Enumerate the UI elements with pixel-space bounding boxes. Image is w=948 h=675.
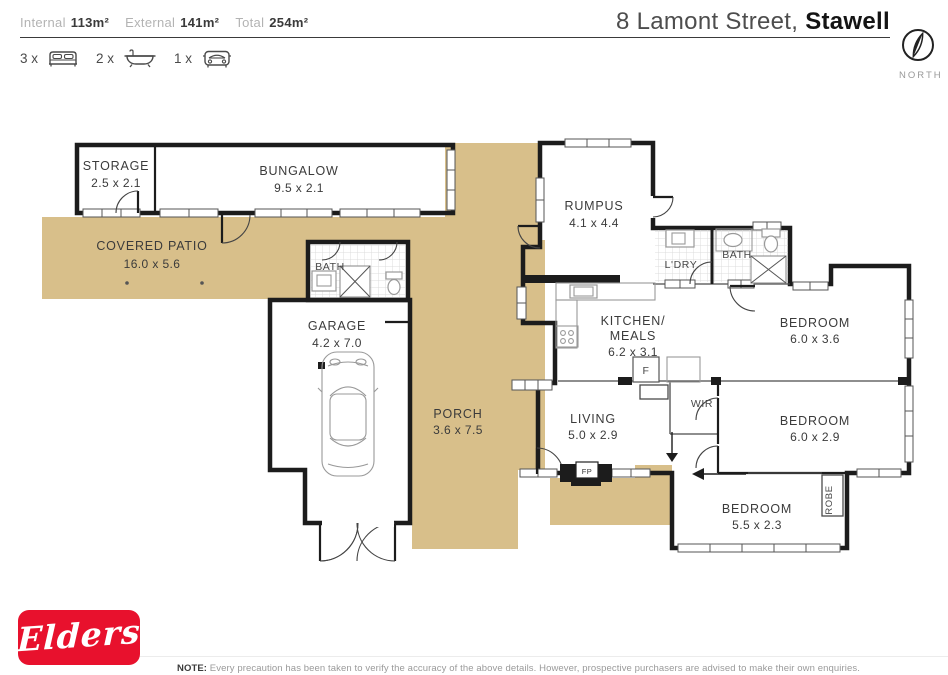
porch-dims: 3.6 x 7.5 <box>433 423 483 437</box>
floorplan-page: Internal113m²External141m²Total254m² 8 L… <box>0 0 948 675</box>
bedroom2-dims: 6.0 x 2.9 <box>790 430 840 444</box>
laundry-label: L'DRY <box>665 259 698 271</box>
porch-label: PORCH <box>433 407 482 421</box>
elders-logo-text: Elders <box>17 612 142 664</box>
wir-label: WIR <box>691 398 713 410</box>
garage-label: GARAGE <box>308 319 366 333</box>
bungalow-dims: 9.5 x 2.1 <box>274 181 324 195</box>
kitchen-dims: 6.2 x 3.1 <box>608 345 658 359</box>
elders-logo: Elders <box>18 610 140 665</box>
bungalow-label: BUNGALOW <box>259 164 338 178</box>
storage-dims: 2.5 x 2.1 <box>91 176 141 190</box>
bedroom1-label: BEDROOM <box>780 316 850 330</box>
rumpus-dims: 4.1 x 4.4 <box>569 216 619 230</box>
kitchen-label-1: KITCHEN/ <box>601 314 666 328</box>
bedroom3-dims: 5.5 x 2.3 <box>732 518 782 532</box>
garage-dims: 4.2 x 7.0 <box>312 336 362 350</box>
car-outline <box>318 352 378 476</box>
bathroom-label: BATH <box>722 249 752 261</box>
kitchen-label-2: MEALS <box>610 329 656 343</box>
covered-patio-label: COVERED PATIO <box>96 239 207 253</box>
floorplan-drawing: STORAGE 2.5 x 2.1 BUNGALOW 9.5 x 2.1 COV… <box>0 0 948 675</box>
bedroom1-dims: 6.0 x 3.6 <box>790 332 840 346</box>
fireplace-label: FP <box>582 467 592 476</box>
fridge-label: F <box>642 365 649 377</box>
storage-label: STORAGE <box>83 159 150 173</box>
note-text: Every precaution has been taken to verif… <box>207 663 860 674</box>
bedroom3-label: BEDROOM <box>722 502 792 516</box>
living-dims: 5.0 x 2.9 <box>568 428 618 442</box>
bedroom2-label: BEDROOM <box>780 414 850 428</box>
footer-divider <box>115 656 948 657</box>
robe-label: ROBE <box>824 485 835 514</box>
disclaimer-note: NOTE: Every precaution has been taken to… <box>177 663 860 674</box>
outdoor-bath-label: BATH <box>315 261 345 273</box>
covered-patio-dims: 16.0 x 5.6 <box>124 257 181 271</box>
note-label: NOTE: <box>177 663 207 674</box>
rumpus-label: RUMPUS <box>565 199 624 213</box>
living-label: LIVING <box>570 412 616 426</box>
